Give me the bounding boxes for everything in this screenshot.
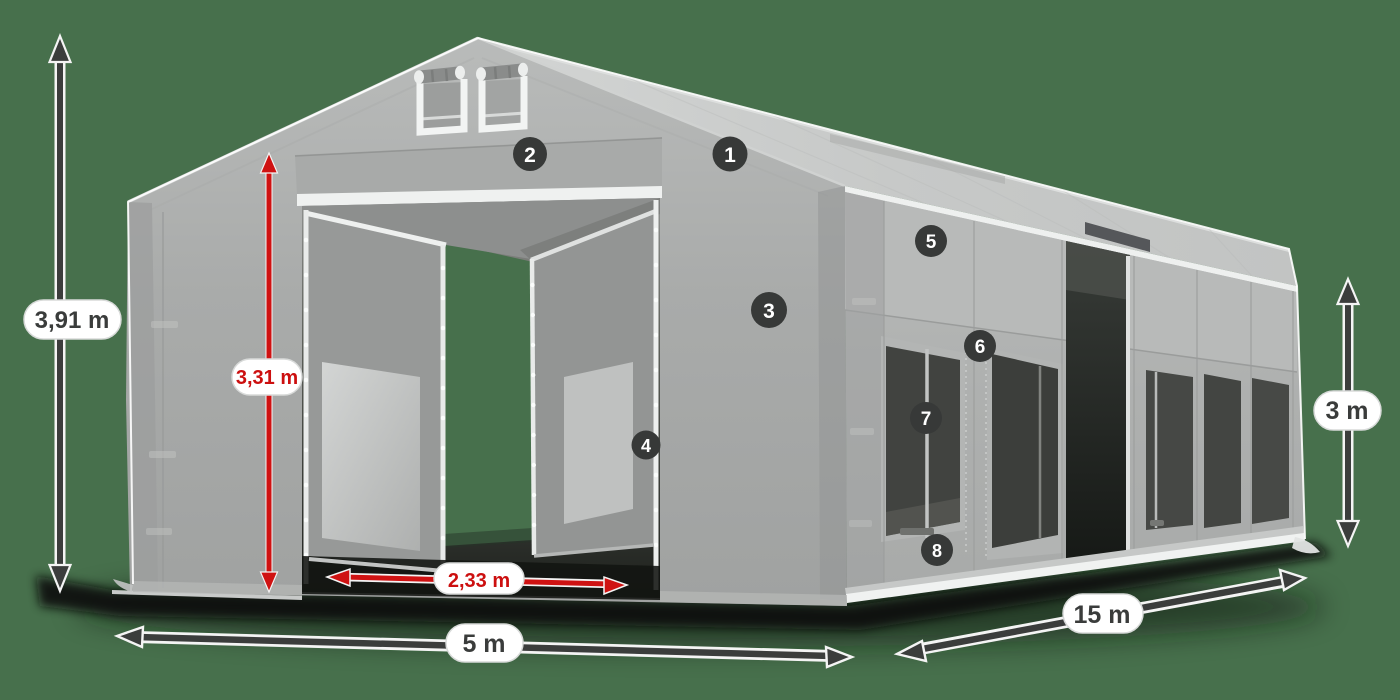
svg-text:7: 7: [921, 409, 932, 430]
svg-text:5 m: 5 m: [462, 630, 505, 658]
svg-text:3: 3: [763, 300, 775, 323]
svg-text:3,91 m: 3,91 m: [35, 307, 110, 334]
svg-text:2,33 m: 2,33 m: [448, 570, 510, 592]
svg-text:6: 6: [975, 337, 986, 358]
svg-text:8: 8: [932, 541, 942, 561]
svg-text:3,31 m: 3,31 m: [236, 367, 298, 389]
svg-text:5: 5: [926, 232, 937, 253]
svg-text:4: 4: [641, 436, 651, 456]
svg-text:2: 2: [524, 144, 536, 167]
svg-text:1: 1: [724, 144, 736, 167]
svg-text:3 m: 3 m: [1325, 397, 1368, 425]
svg-text:15 m: 15 m: [1074, 601, 1131, 629]
